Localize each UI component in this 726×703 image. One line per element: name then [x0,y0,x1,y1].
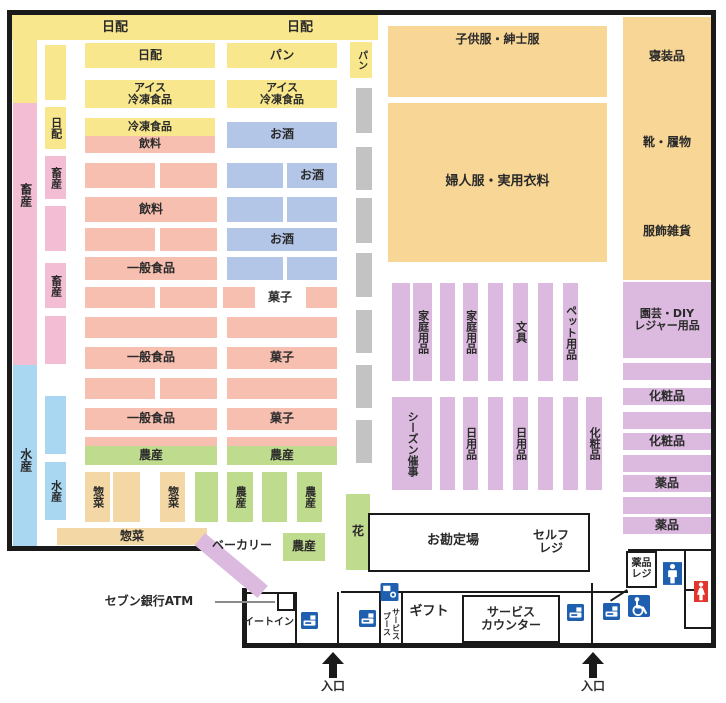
entrance-arrow-right-icon [582,652,604,678]
shelf-green [262,472,287,522]
label-self-register: セルフ レジ [518,518,584,566]
label-dairy-top-left: 日配 [85,17,145,39]
restroom-male-icon [663,562,682,585]
shelf-salmon [85,317,217,338]
dept-medicine-1: 薬品 [623,475,711,492]
wall-entrance-divider-left [337,592,339,647]
aisle-purple [488,397,503,490]
shelf-purple [623,497,711,514]
label-entrance-left: 入口 [316,679,350,694]
dept-cosmetics-1: 化粧品 [623,388,711,405]
aisle-purple [392,283,410,381]
label-pharmacy-register: 薬品 レジ [626,553,657,585]
label-outer-seafood: 水産 [14,430,36,490]
dept-ice-frozen-1: アイス 冷凍食品 [85,80,215,108]
dept-sake-3: お酒 [227,228,337,251]
shelf-purple [623,455,711,472]
dept-general-food-2: 一般食品 [85,347,217,369]
dept-general-food-1: 一般食品 [85,257,217,280]
shelf-alcohol [227,257,283,280]
strip-outer-meat [13,103,37,365]
dept-stationery: 文具 [513,283,528,381]
label-accessories: 服飾雑貨 [627,222,707,242]
aisle-purple [488,283,503,381]
dept-dairy: 日配 [85,43,215,68]
pillar [356,88,372,133]
store-floor-map: 日配日配畜産水産日配畜産畜産水産日配パンパンアイス 冷凍食品アイス 冷凍食品冷凍… [0,0,726,703]
dept-seasonal: シーズン催事 [392,397,432,490]
pillar [356,198,372,243]
label-snacks-1: 菓子 [256,287,304,308]
shelf-purple [623,412,711,429]
label-checkout: お勘定場 [398,530,508,552]
dept-garden-diy: 園芸・DIY レジャー用品 [623,282,711,358]
dept-produce-4: 農産 [297,472,322,522]
shelf-salmon [85,287,155,308]
dept-pet-goods: ペット用品 [563,283,578,381]
multicopy-machine-icon-4-icon [603,603,620,620]
dept-daily-goods-2: 日用品 [513,397,528,490]
wall-restroom-stub [684,627,713,629]
pillar [356,253,372,297]
shelf-salmon [85,163,155,188]
box-atm [277,592,295,611]
strip-outer-dairy [13,40,37,103]
dept-bread-small: パン [350,42,372,78]
col-meat-shelf-1 [45,206,66,251]
label-outer-meat: 畜産 [14,165,36,225]
dept-produce-3: 農産 [227,472,253,522]
wall-left [7,10,12,551]
wall-entrance-divider-right [591,583,593,648]
col-meat-2: 畜産 [45,263,66,308]
dept-produce-5: 農産 [283,533,325,561]
shelf-alcohol [287,257,337,280]
dept-sake-1: お酒 [227,122,337,148]
label-service-counter: サービス カウンター [462,603,560,635]
shelf-salmon [160,228,217,251]
dept-ice-frozen-2: アイス 冷凍食品 [227,80,337,108]
multicopy-machine-icon-2-icon [359,610,376,627]
aisle-purple [538,397,553,490]
multicopy-machine-icon-3-icon [567,604,584,621]
dept-drinks: 飲料 [85,197,217,222]
dept-frozen-drink: 冷凍食品飲料 [85,118,215,153]
shelf-alcohol [287,197,337,222]
wall-right [711,10,716,648]
dept-flower: 花 [346,494,370,570]
shelf-alcohol [227,163,283,188]
dept-produce-2: 農産 [227,437,337,465]
restroom-female-icon [694,581,708,602]
dept-household-2: 家庭用品 [463,283,478,381]
label-dairy-top-right: 日配 [270,17,330,39]
col-dairy: 日配 [45,107,66,149]
shelf-salmon [227,317,337,338]
col-dairy-shelf [45,45,66,100]
col-meat-1: 畜産 [45,156,66,199]
label-seven-bank-atm: セブン銀行ATM [85,593,213,610]
dept-household-1: 家庭用品 [413,283,432,381]
col-seafood-shelf [45,396,66,454]
pillar [356,310,372,353]
col-seafood: 水産 [45,462,66,520]
shelf-salmon [227,378,337,399]
multicopy-machine-icon-1-icon [301,612,318,629]
shelf-salmon [85,228,155,251]
pillar [356,147,372,190]
dept-deli-2: 惣菜 [160,472,185,522]
shelf-tan [113,472,140,522]
accessible-restroom-icon [628,595,650,617]
shelf-alcohol [227,197,283,222]
label-service-booth: サービス ブース [380,602,401,646]
aisle-purple [563,397,578,490]
dept-daily-goods-1: 日用品 [463,397,478,490]
dept-cosmetics-aisle: 化粧品 [586,397,602,490]
shelf-purple [623,363,711,380]
dept-sake-2: お酒 [287,163,337,188]
label-bedding: 寝装品 [627,47,707,67]
shelf-green [195,472,218,522]
label-eat-in: イートイン [241,616,297,630]
pillar [356,420,372,463]
shelf-salmon [160,378,217,399]
col-meat-shelf-2 [45,316,66,364]
label-entrance-right: 入口 [576,679,610,694]
dept-bread: パン [227,43,337,68]
wall-booth-right [401,592,403,645]
dept-deli-strip: 惣菜 [57,528,207,545]
entrance-arrow-left-icon [322,652,344,678]
dept-snacks-3: 菓子 [227,408,337,430]
atm-pointer-line [215,601,275,603]
dept-kids-mens-wear: 子供服・紳士服 [388,26,607,97]
aisle-purple [440,283,455,381]
label-gift: ギフト [405,602,453,622]
dept-womens-wear: 婦人服・実用衣料 [388,103,607,262]
dept-medicine-2: 薬品 [623,517,711,534]
dept-general-food-3: 一般食品 [85,408,217,430]
wall-bottom [242,643,716,648]
aisle-purple [538,283,553,381]
dept-snacks-2: 菓子 [227,347,337,369]
aisle-purple [440,397,455,490]
wall-bottom-left [7,546,213,551]
label-shoes: 靴・履物 [627,133,707,153]
shelf-salmon [223,287,255,308]
shelf-salmon [306,287,337,308]
pillar [356,365,372,408]
label-bakery: ベーカリー [196,538,288,554]
service-booth-photo-icon [380,583,399,601]
dept-deli-1: 惣菜 [85,472,110,522]
shelf-salmon [85,378,155,399]
dept-produce-1: 農産 [85,437,217,465]
dept-cosmetics-2: 化粧品 [623,433,711,450]
shelf-salmon [160,163,217,188]
shelf-salmon [160,287,217,308]
